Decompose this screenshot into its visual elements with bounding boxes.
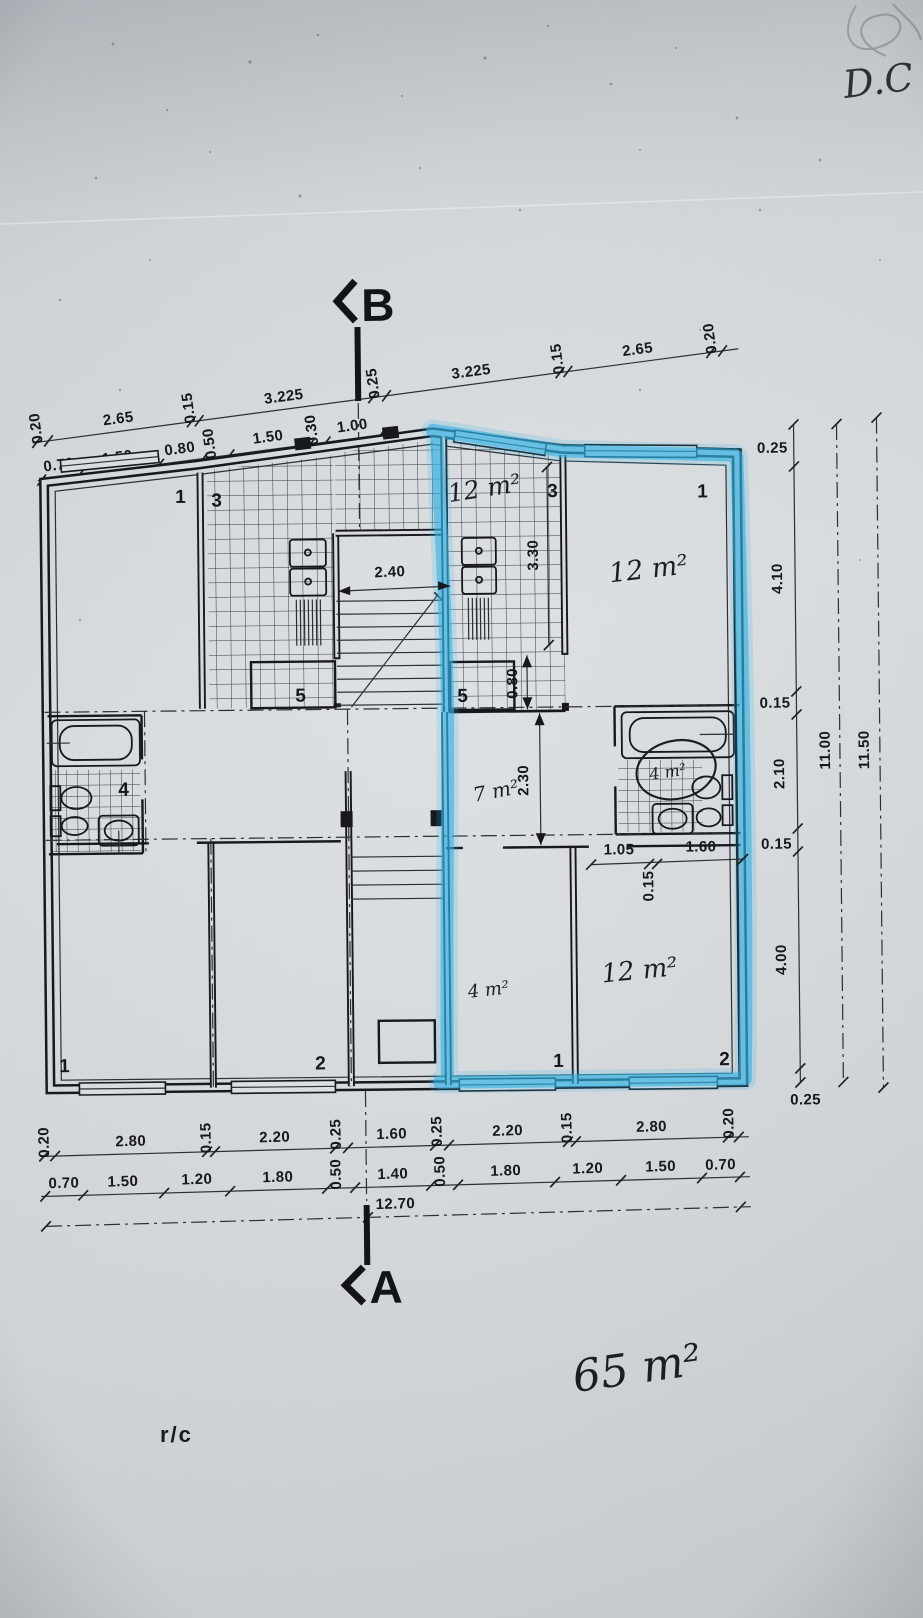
floor-plan-drawing: D.C 0.20 2.65 0.15 3.225 0.25 3.225 0.15… bbox=[0, 0, 923, 1618]
photo-vignette bbox=[0, 0, 923, 1618]
floor-plan-photo: D.C 0.20 2.65 0.15 3.225 0.25 3.225 0.15… bbox=[0, 0, 923, 1618]
